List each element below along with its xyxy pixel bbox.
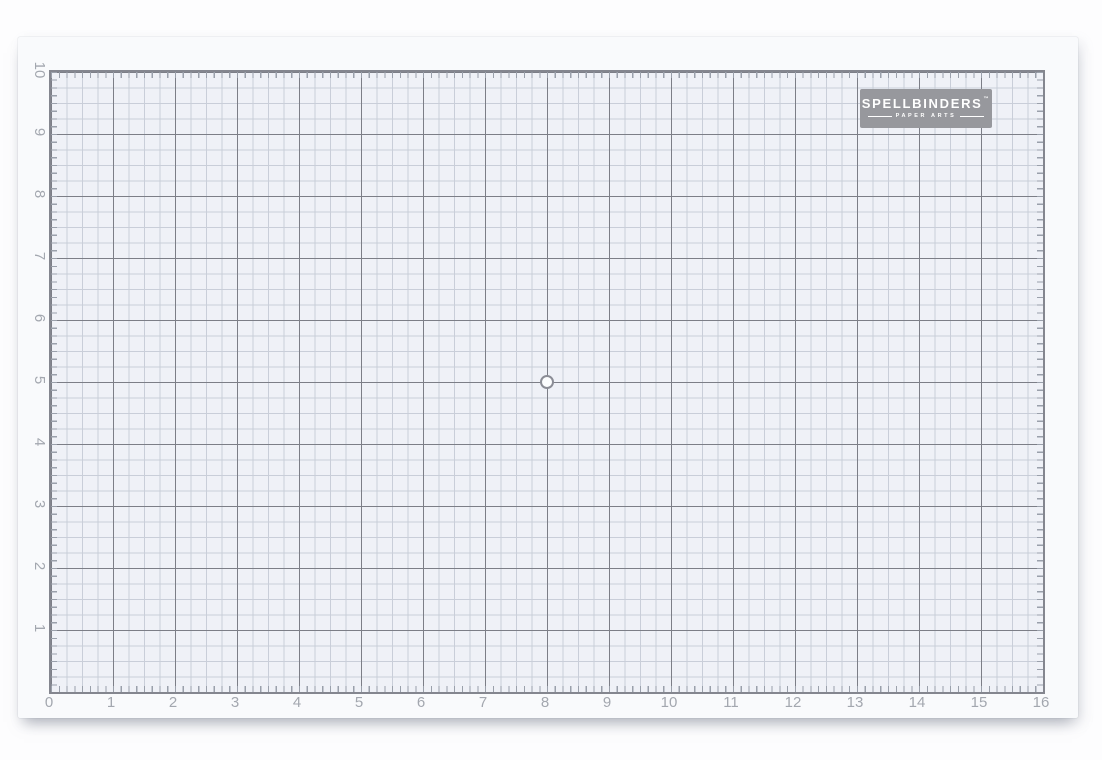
ruler-ticks-bottom (51, 686, 1043, 692)
y-axis-label: 4 (30, 432, 48, 452)
y-axis-label: 5 (30, 370, 48, 390)
brand-subtitle: PAPER ARTS (896, 113, 957, 119)
y-axis-label: 9 (30, 122, 48, 142)
y-axis-label: 2 (30, 556, 48, 576)
x-axis-label: 6 (406, 695, 436, 711)
x-axis-label: 13 (840, 695, 870, 711)
y-axis-label: 7 (30, 246, 48, 266)
brand-name-row: SPELLBINDERS™ (862, 98, 991, 110)
grid-paper-mat: SPELLBINDERS™ PAPER ARTS 0 1 2 3 4 5 6 7… (18, 37, 1078, 718)
logo-rule-left (868, 116, 892, 117)
ruler-ticks-left (51, 72, 57, 692)
ruler-ticks-top (51, 72, 1043, 78)
x-axis-label: 0 (34, 695, 64, 711)
ruler-ticks-right (1037, 72, 1043, 692)
x-axis-label: 14 (902, 695, 932, 711)
brand-name: SPELLBINDERS (862, 98, 983, 110)
x-axis-label: 4 (282, 695, 312, 711)
x-axis-label: 16 (1026, 695, 1056, 711)
y-axis-label: 8 (30, 184, 48, 204)
logo-rule-right (960, 116, 984, 117)
x-axis-label: 11 (716, 695, 746, 711)
x-axis-label: 1 (96, 695, 126, 711)
center-registration-circle-icon (540, 375, 554, 389)
brand-logo: SPELLBINDERS™ PAPER ARTS (860, 89, 992, 128)
x-axis-label: 10 (654, 695, 684, 711)
x-axis-label: 5 (344, 695, 374, 711)
product-photo-background: SPELLBINDERS™ PAPER ARTS 0 1 2 3 4 5 6 7… (0, 0, 1102, 760)
brand-subtitle-row: PAPER ARTS (868, 113, 985, 119)
x-axis-label: 12 (778, 695, 808, 711)
trademark-symbol: ™ (984, 97, 991, 102)
x-axis-label: 3 (220, 695, 250, 711)
x-axis-label: 2 (158, 695, 188, 711)
x-axis-label: 7 (468, 695, 498, 711)
y-axis-label: 3 (30, 494, 48, 514)
x-axis-label: 8 (530, 695, 560, 711)
y-axis-label: 6 (30, 308, 48, 328)
x-axis-label: 9 (592, 695, 622, 711)
x-axis-label: 15 (964, 695, 994, 711)
y-axis-label: 1 (30, 618, 48, 638)
y-axis-label: 10 (30, 60, 48, 80)
measurement-grid: SPELLBINDERS™ PAPER ARTS (49, 70, 1045, 694)
